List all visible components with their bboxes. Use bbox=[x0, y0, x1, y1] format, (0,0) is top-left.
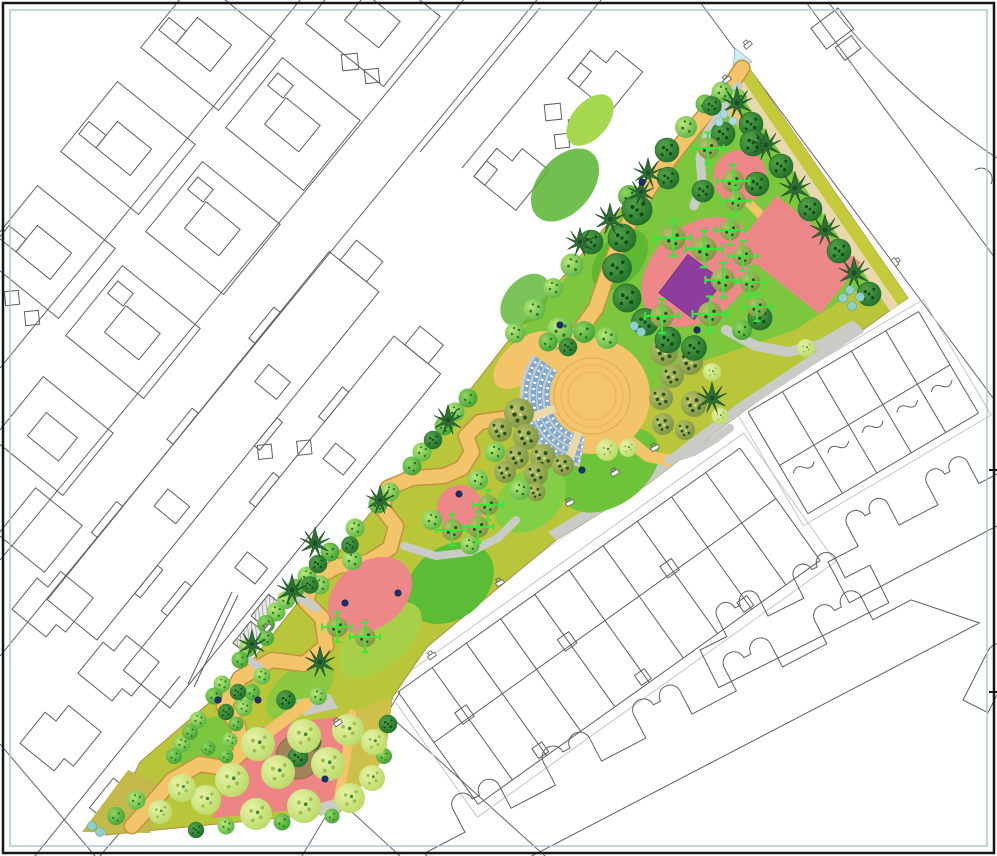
plan-layers bbox=[0, 0, 997, 856]
site-plan-canvas bbox=[0, 0, 997, 856]
site-plan-page bbox=[0, 0, 997, 856]
